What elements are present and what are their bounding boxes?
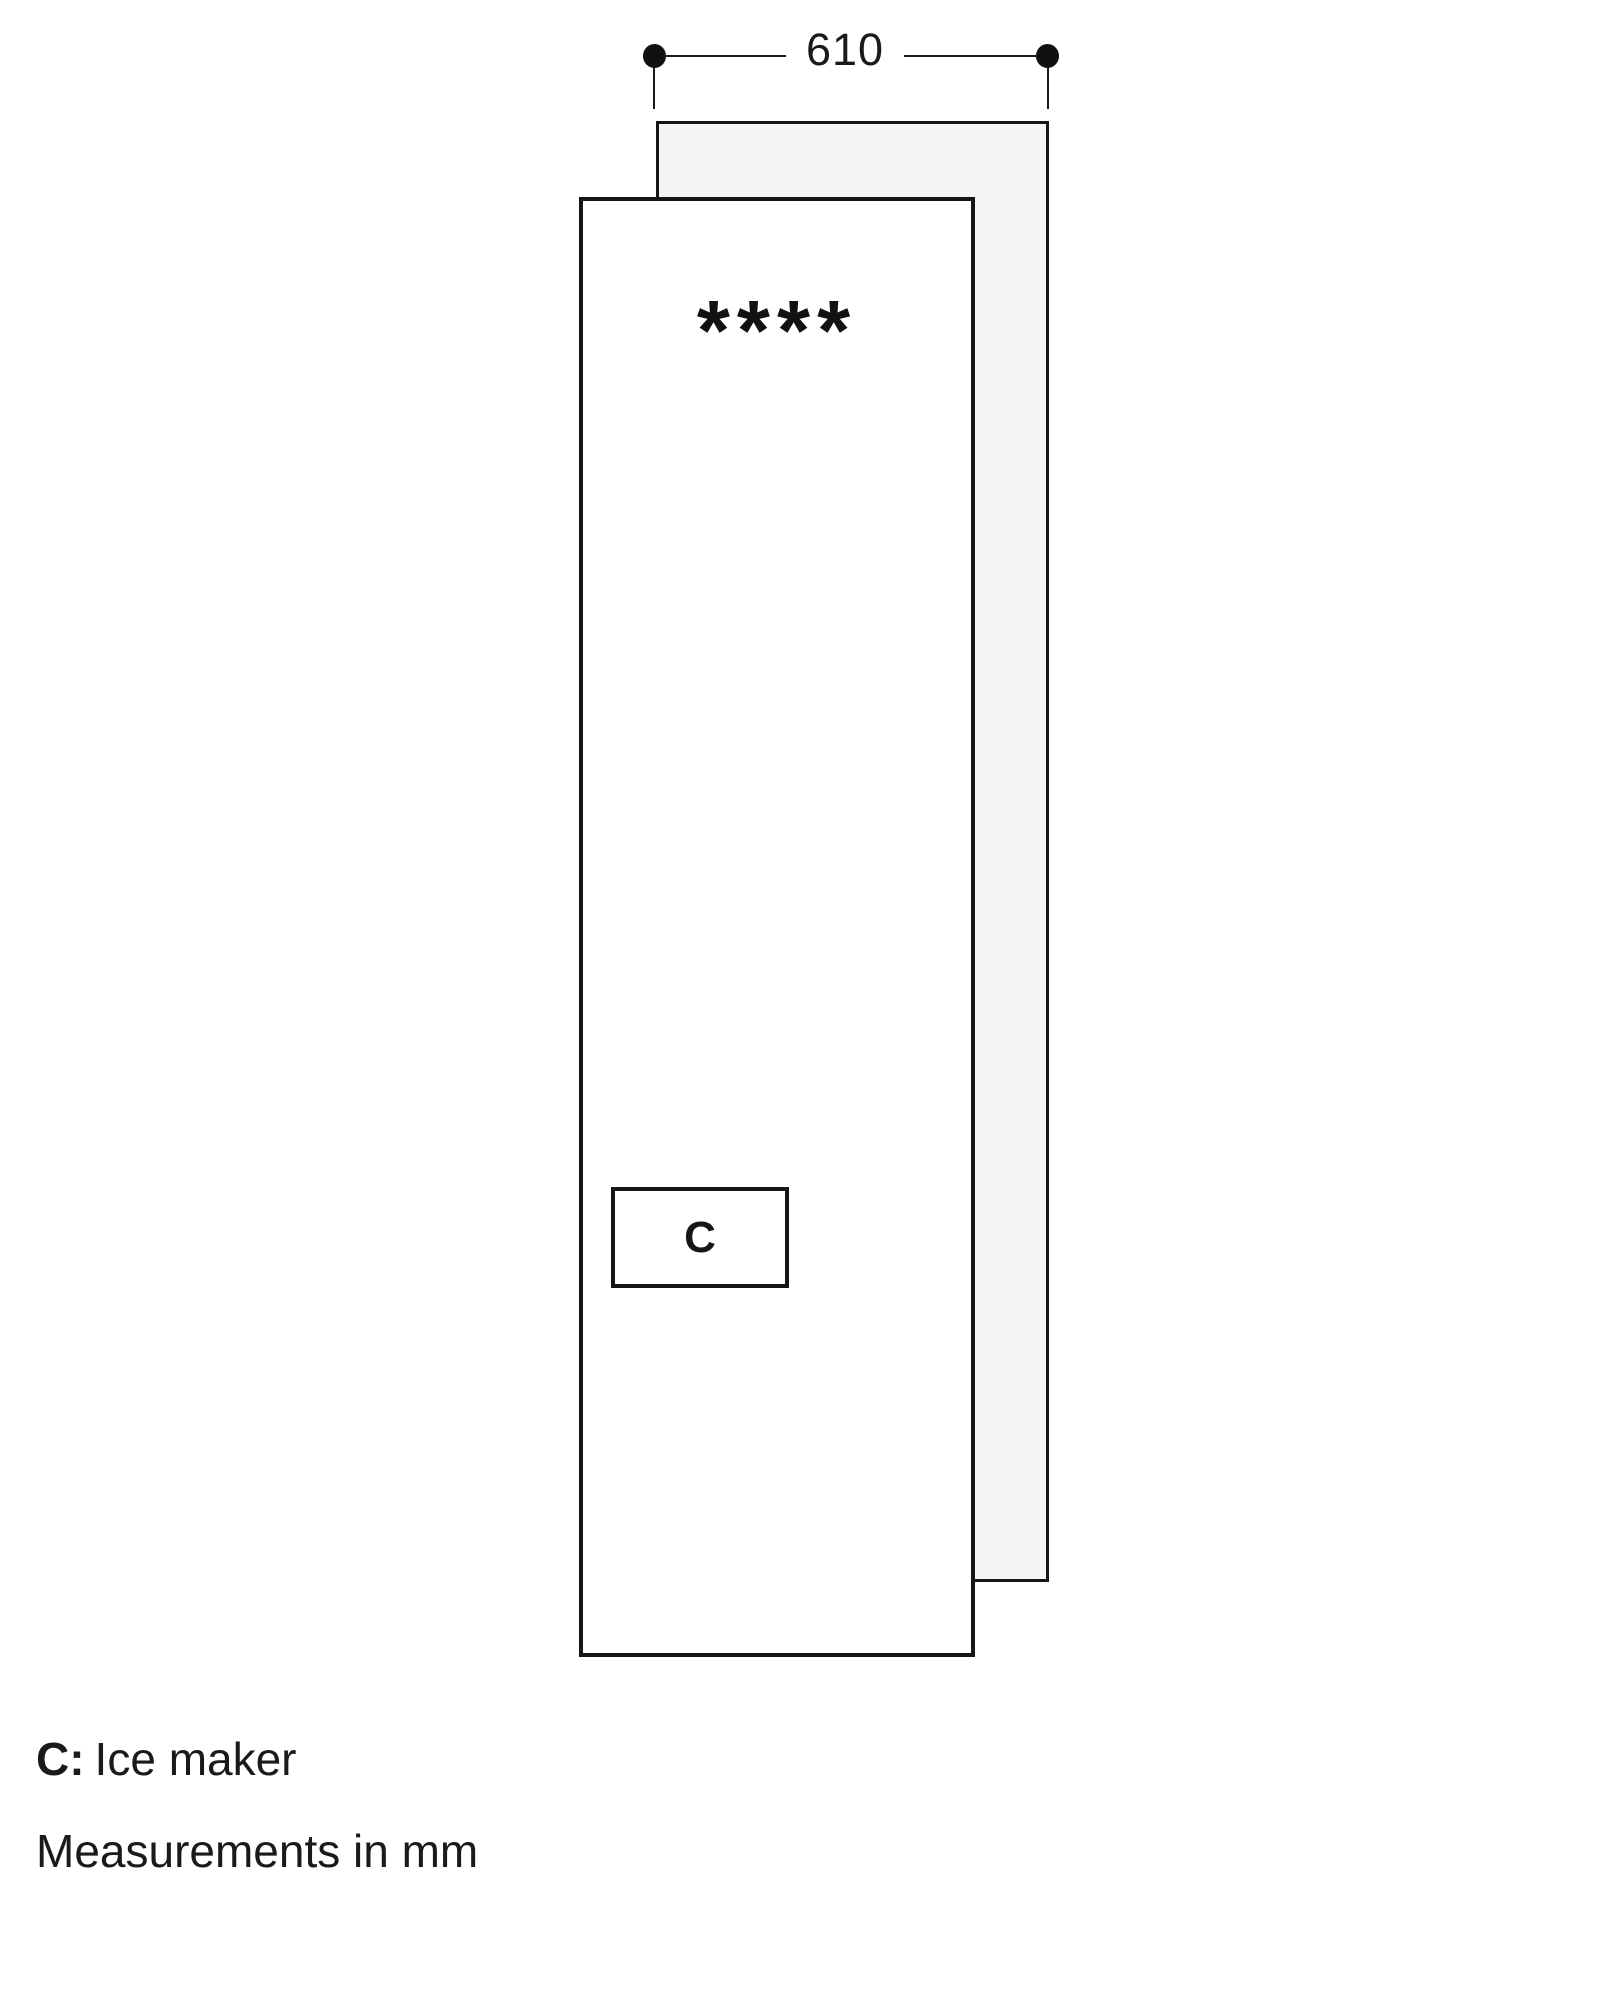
units-note: Measurements in mm bbox=[36, 1826, 478, 1877]
ice-maker-label: C bbox=[684, 1216, 716, 1260]
dimension-endpoint-dot-right bbox=[1036, 44, 1059, 68]
diagram-canvas: 610 **** C C: Ice maker Measurements in … bbox=[0, 0, 1621, 2000]
ice-maker-box: C bbox=[611, 1187, 789, 1288]
dimension-label: 610 bbox=[786, 27, 904, 72]
dimension-extension-line-right bbox=[1047, 67, 1049, 109]
dimension-endpoint-dot-left bbox=[643, 44, 666, 68]
freezer-star-rating: **** bbox=[583, 289, 971, 374]
appliance-front-panel: **** C bbox=[579, 197, 975, 1657]
dimension-extension-line-left bbox=[653, 67, 655, 109]
legend-description: Ice maker bbox=[95, 1734, 297, 1785]
legend-row: C: Ice maker bbox=[36, 1734, 297, 1785]
legend-key: C: bbox=[36, 1734, 85, 1785]
